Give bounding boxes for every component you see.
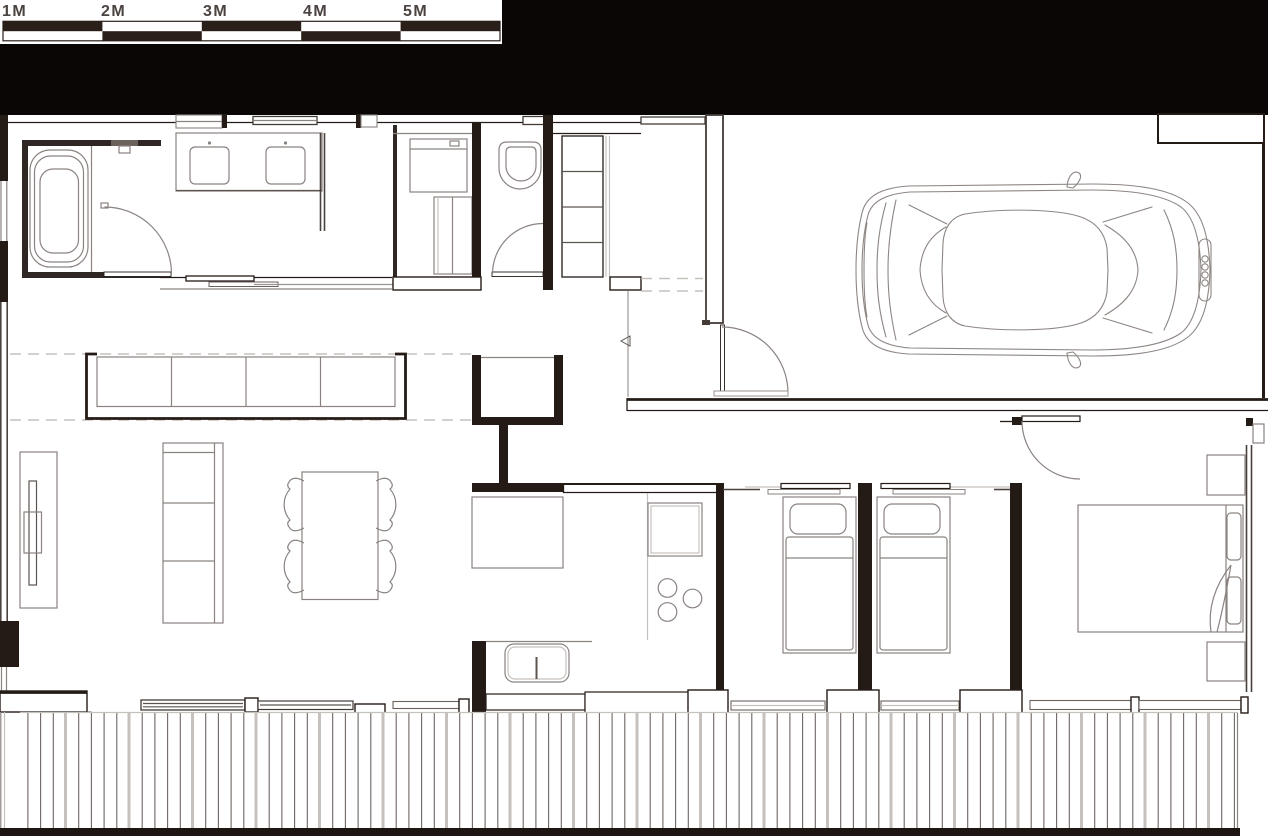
- chair-icon: [376, 540, 396, 593]
- shower-icon: [111, 140, 138, 153]
- scale-label-4m: 4M: [303, 3, 328, 20]
- oven-icon: [648, 503, 702, 556]
- scale-label-2m: 2M: [101, 3, 126, 20]
- scale-label-1m: 1M: [2, 3, 27, 20]
- deck-planks-icon: [20, 713, 1238, 828]
- bed-double-icon: [1078, 505, 1243, 632]
- nightstand-icon: [1207, 455, 1245, 495]
- floor-plan-page: 1M 2M 3M 4M 5M: [0, 0, 1268, 836]
- garage-door-swing-icon: [714, 325, 788, 396]
- master-bedroom: [1000, 416, 1264, 713]
- scale-label-5m: 5M: [403, 3, 428, 20]
- deck: [0, 713, 1240, 836]
- wc-room: [492, 115, 553, 290]
- sofa-icon: [163, 443, 223, 623]
- bed-single-icon: [877, 497, 950, 653]
- nightstand-icon: [1207, 642, 1245, 681]
- header-band: [0, 0, 1268, 115]
- chair-icon: [284, 478, 304, 531]
- cooktop-burner-icon: [658, 579, 702, 622]
- pantry-icon: [472, 355, 563, 568]
- vanity-room: [160, 133, 470, 289]
- closet-shelves-icon: [562, 136, 610, 277]
- car-icon: [856, 172, 1211, 368]
- bathtub-icon: [30, 150, 88, 267]
- dining-table-icon: [302, 472, 378, 600]
- utility-room: [393, 122, 481, 290]
- chair-icon: [376, 478, 396, 531]
- chair-icon: [284, 540, 304, 593]
- fridge-icon: [472, 497, 563, 568]
- sliding-door-icon: [1030, 697, 1248, 713]
- side-mirror-icon: [1067, 172, 1081, 188]
- bathroom-door-swing-icon: [101, 203, 172, 277]
- hall-closet: [553, 134, 703, 292]
- window-icon: [176, 114, 705, 128]
- tv-console-icon: [20, 452, 57, 608]
- scale-label-3m: 3M: [203, 3, 228, 20]
- kids-bedroom-2: [858, 483, 1022, 693]
- sliding-door-icon: [881, 484, 1010, 495]
- kitchen-sink-icon: [505, 644, 569, 682]
- living-room: [10, 354, 472, 623]
- garage-south-wall: [627, 398, 1268, 411]
- utility-cabinet-icon: [434, 197, 472, 274]
- master-door-swing-icon: [1022, 416, 1080, 479]
- entry-arrow-icon: [621, 336, 630, 346]
- washing-machine-icon: [410, 139, 467, 192]
- floor-plan-svg: 1M 2M 3M 4M 5M: [0, 0, 1268, 836]
- wc-door-swing-icon: [492, 224, 543, 277]
- sliding-door-icon: [745, 484, 850, 495]
- bedroom-south-walls: [688, 690, 1022, 714]
- deck-edge-band: [0, 828, 1240, 836]
- side-mirror-icon: [1067, 352, 1081, 368]
- audi-rings-icon: [1202, 256, 1208, 286]
- entry: [621, 115, 788, 397]
- bathroom: [22, 140, 172, 278]
- kids-bedroom-1: [723, 484, 856, 654]
- toilet-icon: [499, 142, 541, 189]
- vanity-sink-icon: [190, 141, 305, 184]
- window-seat-icon: [87, 354, 406, 419]
- bed-single-icon: [783, 497, 856, 653]
